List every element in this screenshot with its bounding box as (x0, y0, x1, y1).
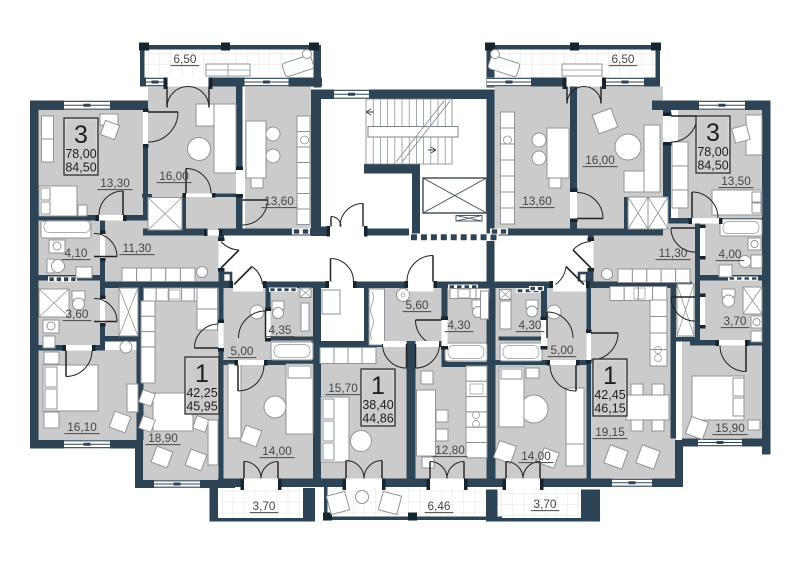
svg-text:5,00: 5,00 (551, 343, 574, 357)
svg-text:14,00: 14,00 (262, 444, 292, 458)
svg-text:6,50: 6,50 (174, 52, 197, 66)
svg-text:1: 1 (603, 362, 617, 390)
svg-text:84,50: 84,50 (697, 159, 728, 173)
svg-text:11,30: 11,30 (123, 241, 152, 255)
svg-text:4,30: 4,30 (448, 318, 471, 332)
svg-text:11,30: 11,30 (659, 246, 688, 260)
svg-text:18,90: 18,90 (148, 431, 178, 445)
svg-text:5,00: 5,00 (231, 344, 254, 358)
svg-text:44,86: 44,86 (362, 412, 393, 426)
svg-text:3,70: 3,70 (724, 314, 747, 328)
svg-text:15,90: 15,90 (715, 421, 745, 435)
svg-text:14,00: 14,00 (521, 449, 551, 463)
svg-text:5,60: 5,60 (406, 298, 429, 312)
svg-text:13,50: 13,50 (721, 174, 751, 188)
svg-text:4,30: 4,30 (519, 318, 542, 332)
svg-text:42,25: 42,25 (186, 386, 217, 400)
svg-text:12,80: 12,80 (435, 443, 465, 457)
svg-text:78,00: 78,00 (65, 147, 96, 161)
svg-text:46,15: 46,15 (594, 402, 625, 416)
svg-text:13,30: 13,30 (100, 176, 130, 190)
svg-text:3,60: 3,60 (66, 307, 89, 321)
svg-text:45,95: 45,95 (186, 400, 217, 414)
svg-text:3,70: 3,70 (534, 497, 557, 511)
svg-text:38,40: 38,40 (362, 398, 393, 412)
svg-text:6,50: 6,50 (612, 52, 635, 66)
svg-text:3: 3 (74, 121, 88, 149)
svg-text:78,00: 78,00 (697, 145, 728, 159)
svg-text:16,10: 16,10 (67, 420, 97, 434)
svg-text:4,00: 4,00 (719, 247, 742, 261)
svg-text:84,50: 84,50 (65, 161, 96, 175)
svg-text:19,15: 19,15 (595, 425, 625, 439)
svg-text:3,70: 3,70 (253, 499, 276, 513)
svg-text:16,00: 16,00 (585, 153, 615, 167)
svg-text:6,46: 6,46 (428, 499, 451, 513)
svg-text:15,70: 15,70 (328, 381, 358, 395)
svg-text:3: 3 (706, 119, 720, 147)
svg-text:1: 1 (371, 372, 385, 400)
svg-text:13,60: 13,60 (522, 194, 552, 208)
svg-text:4,35: 4,35 (269, 323, 292, 337)
svg-text:16,00: 16,00 (159, 169, 189, 183)
svg-text:1: 1 (195, 360, 209, 388)
svg-text:13,60: 13,60 (264, 194, 294, 208)
svg-text:42,45: 42,45 (594, 388, 625, 402)
svg-text:4,10: 4,10 (65, 246, 88, 260)
